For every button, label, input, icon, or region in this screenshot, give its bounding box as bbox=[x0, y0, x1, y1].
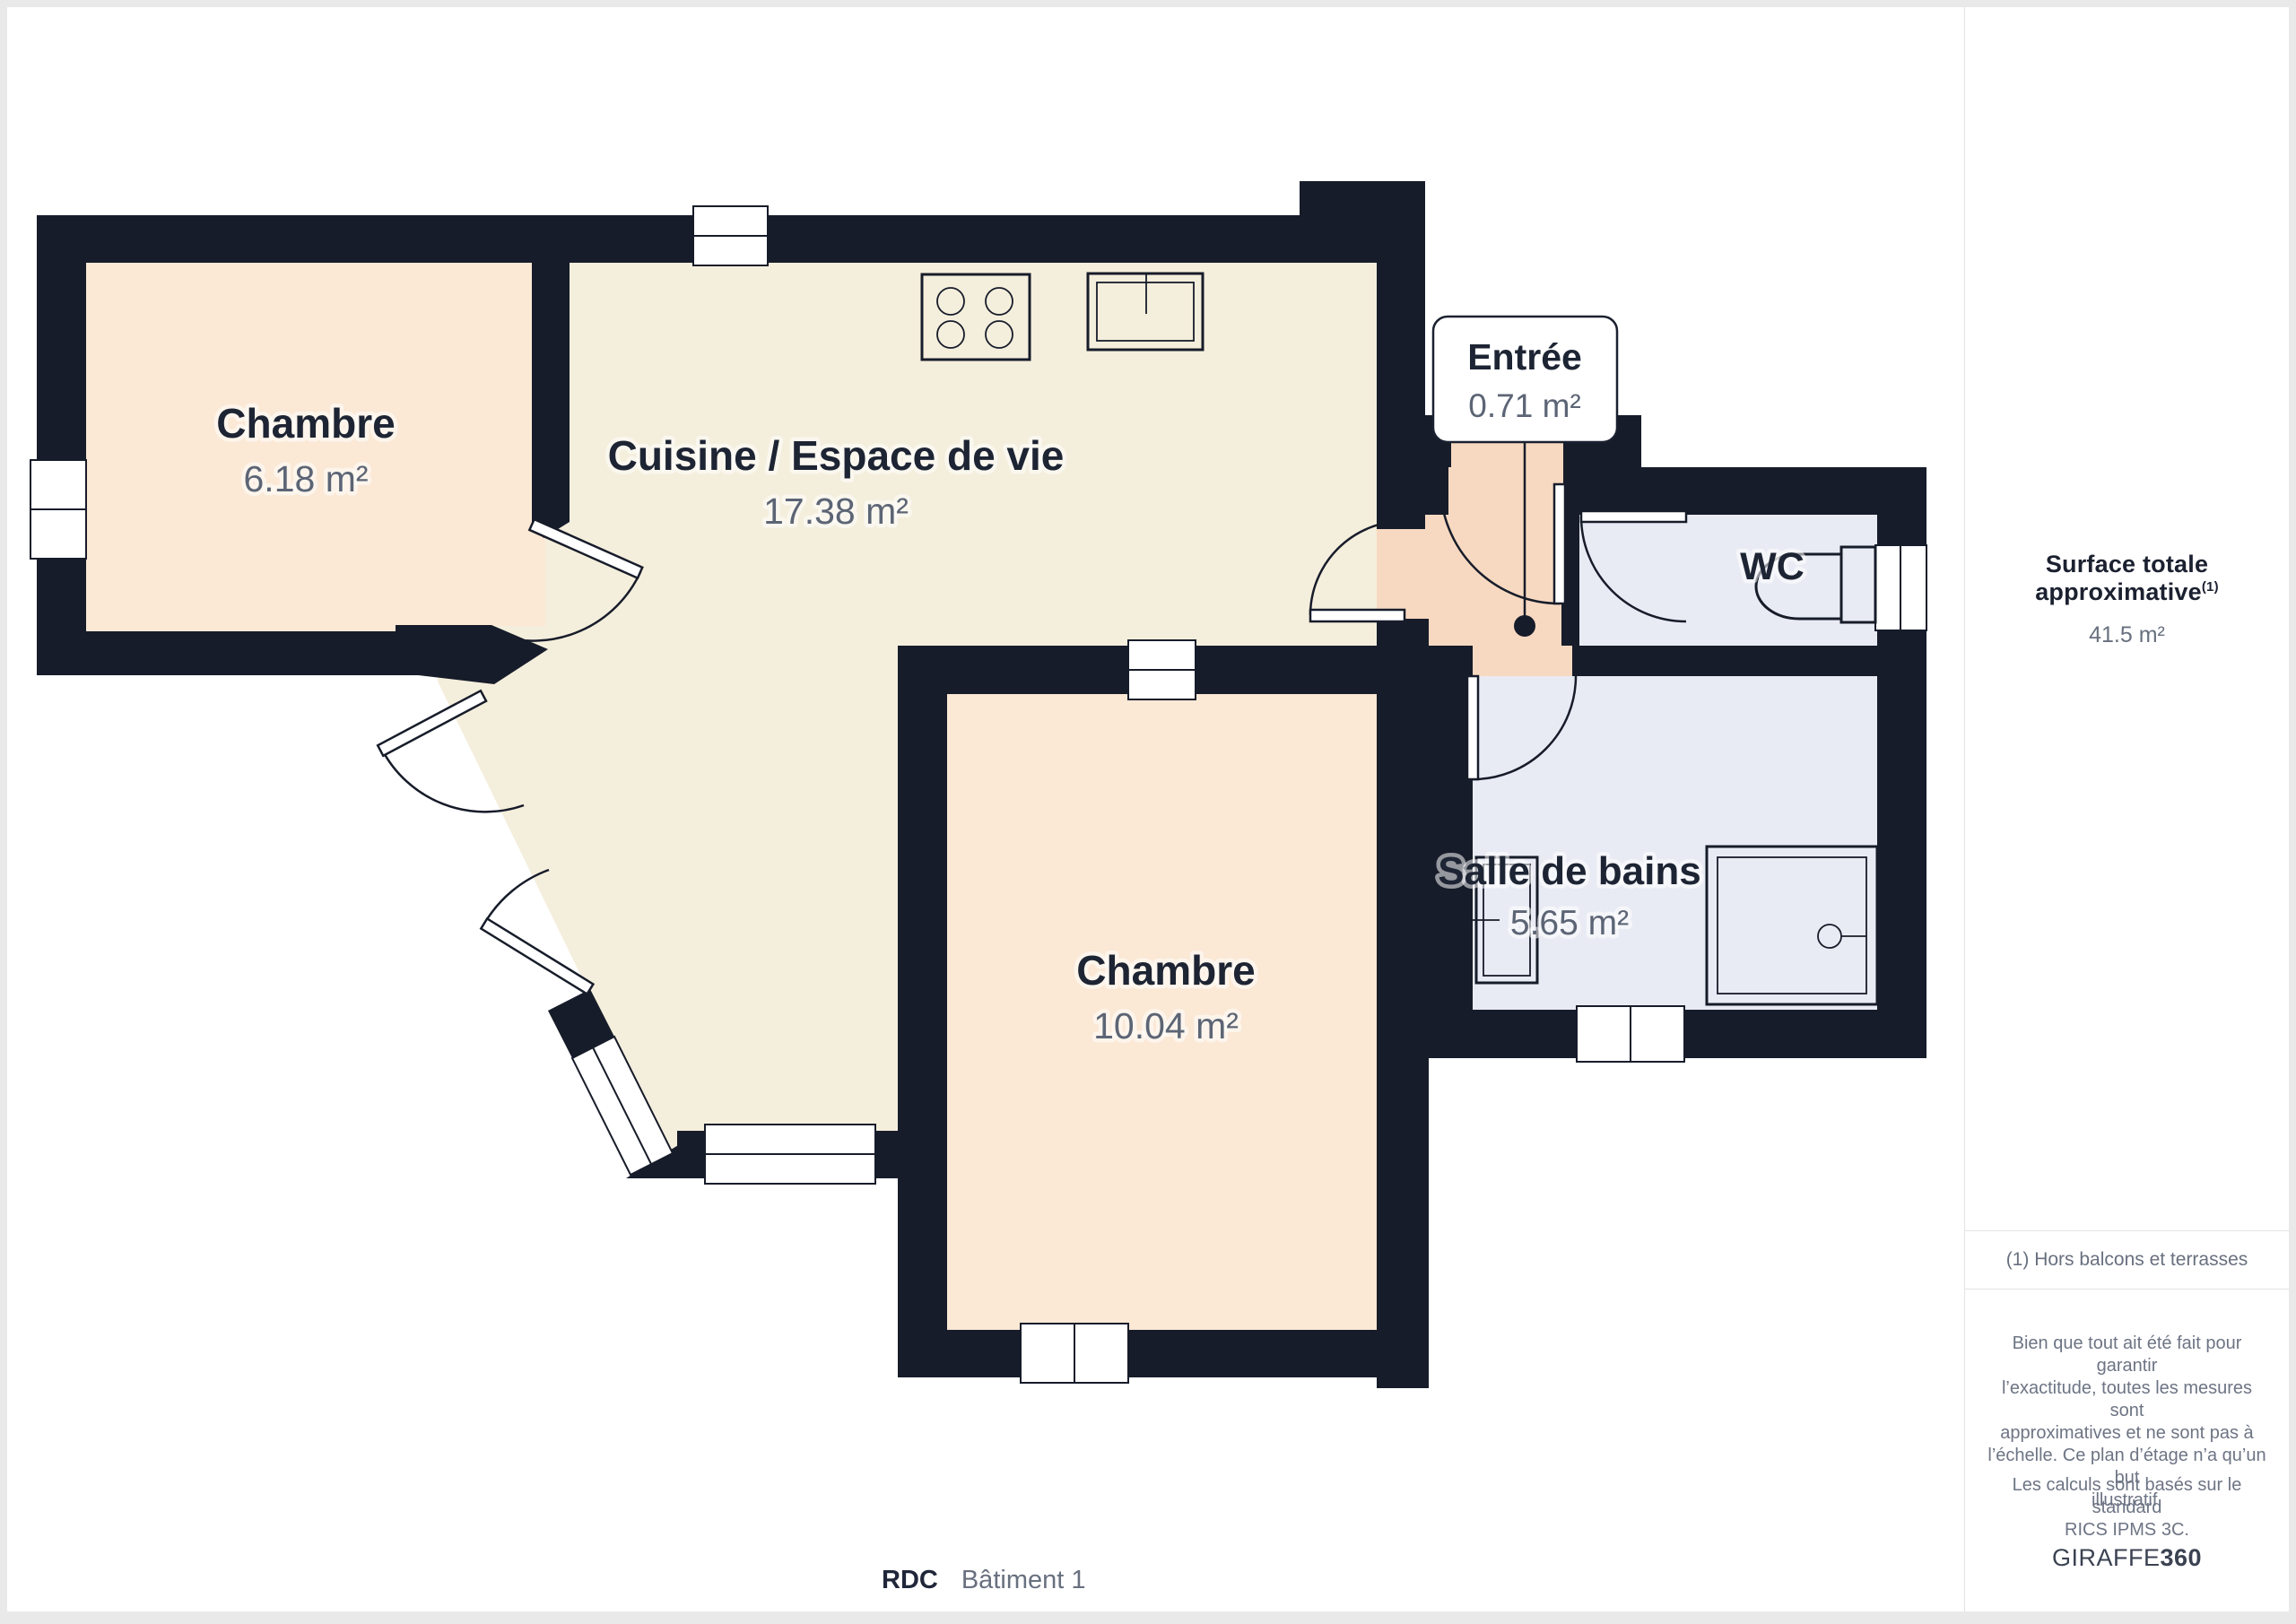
window-chambre2-bottom bbox=[1021, 1324, 1128, 1383]
chambre1-name: Chambre bbox=[216, 400, 395, 447]
salle-de-bains-area: 5.65 m² bbox=[1510, 904, 1629, 942]
cuisine-name: Cuisine / Espace de vie bbox=[608, 432, 1065, 479]
wc-name: WC bbox=[1740, 545, 1805, 588]
salle-de-bains-name: Salle de bains bbox=[1438, 849, 1700, 893]
callout-anchor-dot bbox=[1514, 615, 1535, 637]
entree-name: Entrée bbox=[1467, 336, 1582, 378]
floor-label: RDC bbox=[882, 1566, 938, 1595]
room-salle-de-bains bbox=[1473, 676, 1877, 1010]
window-chambre1-left bbox=[30, 460, 86, 559]
chambre1-area: 6.18 m² bbox=[244, 458, 369, 499]
giraffe360-logo-regular: GIRAFFE bbox=[2052, 1544, 2161, 1571]
window-top-wall bbox=[693, 206, 768, 265]
plan-footer: RDC Bâtiment 1 bbox=[882, 1566, 1085, 1595]
chambre2-area: 10.04 m² bbox=[1093, 1005, 1239, 1046]
window-chambre2-top bbox=[1128, 640, 1196, 699]
entree-area: 0.71 m² bbox=[1468, 387, 1580, 424]
building-label: Bâtiment 1 bbox=[961, 1566, 1086, 1595]
surface-total-block: Surface totale approximative(1) 41.5 m² bbox=[1965, 551, 2289, 648]
floor-plan: Entrée 0.71 m² Chambre 6.18 m² Cuisine /… bbox=[7, 7, 1964, 1617]
window-bath-bottom bbox=[1577, 1006, 1684, 1062]
surface-total-value: 41.5 m² bbox=[1965, 622, 2289, 648]
standard-text: Les calculs sont basés sur le standard R… bbox=[1987, 1474, 2267, 1541]
window-wc-right bbox=[1875, 545, 1926, 630]
giraffe360-logo: GIRAFFE360 bbox=[1965, 1544, 2289, 1572]
floor-plan-area: Entrée 0.71 m² Chambre 6.18 m² Cuisine /… bbox=[7, 7, 1964, 1611]
room-wc bbox=[1579, 515, 1877, 646]
window-cuisine-bottom bbox=[705, 1125, 875, 1184]
surface-total-title: Surface totale approximative(1) bbox=[1965, 551, 2289, 606]
info-sidebar: Surface totale approximative(1) 41.5 m² … bbox=[1964, 7, 2289, 1611]
page: Entrée 0.71 m² Chambre 6.18 m² Cuisine /… bbox=[0, 0, 2296, 1624]
chambre2-name: Chambre bbox=[1076, 947, 1255, 994]
giraffe360-logo-bold: 360 bbox=[2160, 1544, 2202, 1571]
footnote: (1) Hors balcons et terrasses bbox=[1965, 1230, 2289, 1290]
cuisine-area: 17.38 m² bbox=[763, 491, 909, 532]
surface-total-title-text: Surface totale approximative bbox=[2035, 551, 2208, 605]
surface-total-footnote-marker: (1) bbox=[2202, 579, 2219, 595]
